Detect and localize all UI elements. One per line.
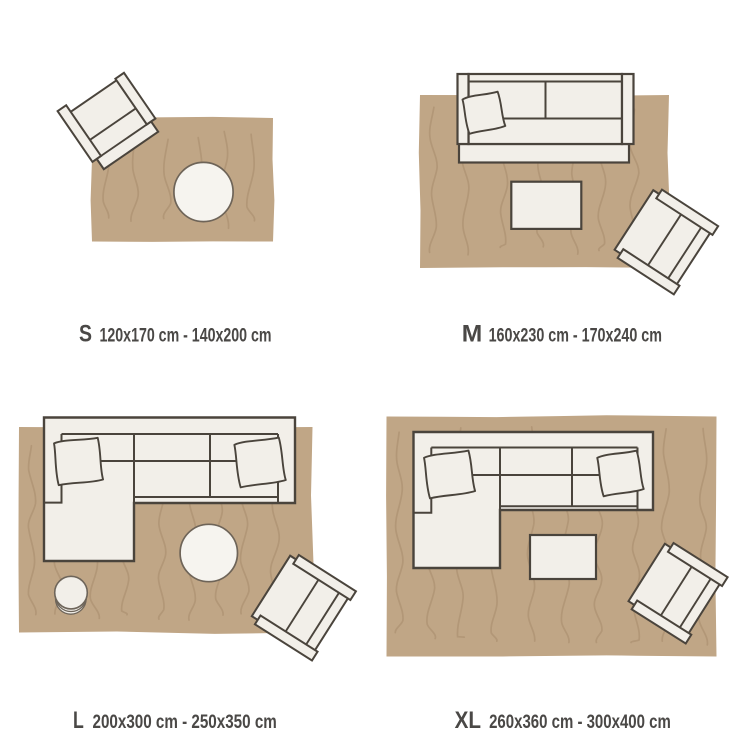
svg-text:L: L [73, 707, 84, 734]
svg-text:200x300 cm - 250x350 cm: 200x300 cm - 250x350 cm [93, 711, 277, 733]
svg-text:160x230 cm - 170x240 cm: 160x230 cm - 170x240 cm [489, 325, 662, 347]
svg-text:120x170 cm - 140x200 cm: 120x170 cm - 140x200 cm [100, 325, 272, 347]
svg-text:XL: XL [455, 707, 481, 734]
svg-text:S: S [79, 321, 92, 348]
svg-text:260x360 cm - 300x400 cm: 260x360 cm - 300x400 cm [489, 711, 671, 733]
svg-text:M: M [462, 321, 483, 348]
